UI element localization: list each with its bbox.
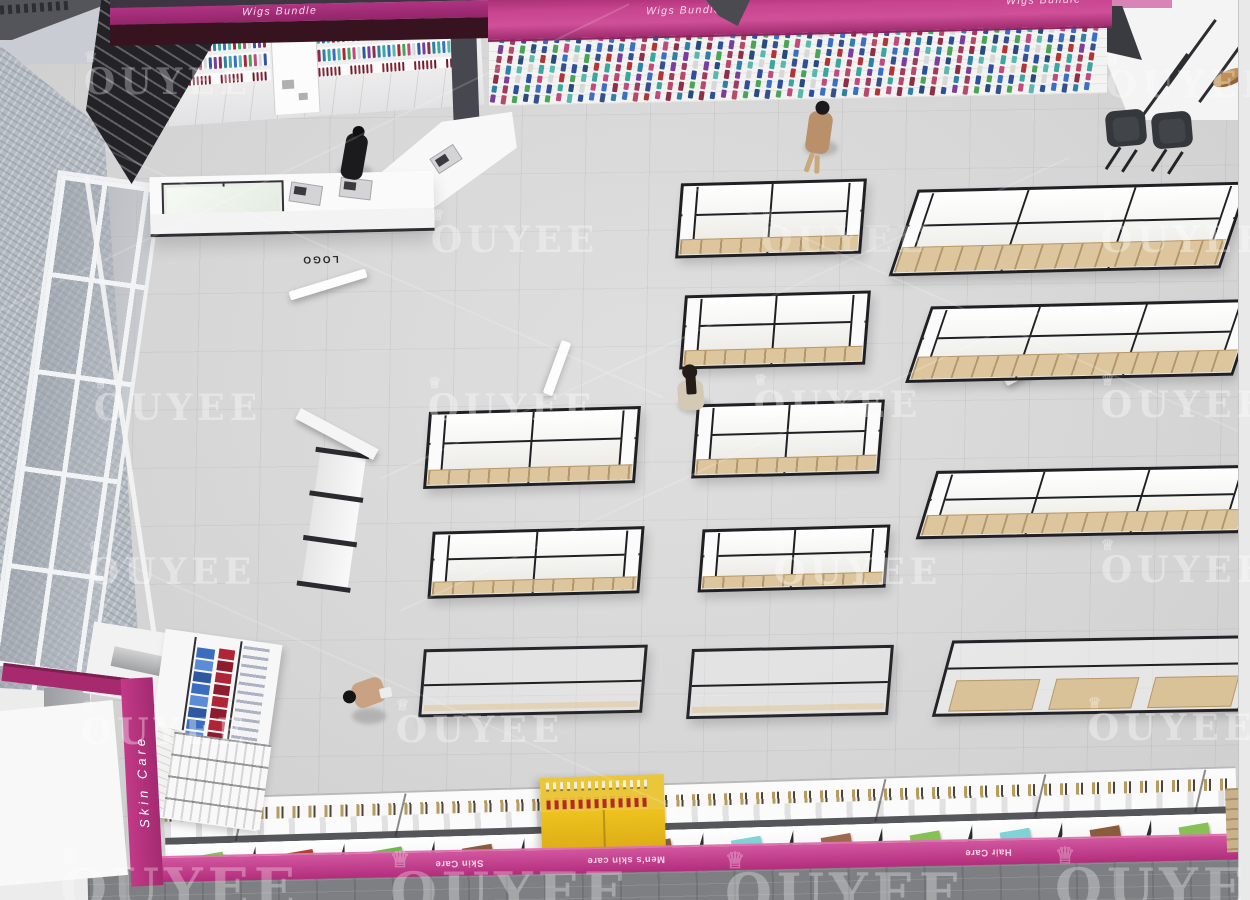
chair-leg <box>1121 149 1138 172</box>
display-table-std <box>427 526 644 599</box>
person-body <box>339 132 369 181</box>
crown-icon: ♕ <box>396 696 410 714</box>
mens-skin-care-label: Men's skin care <box>587 853 665 866</box>
red-item <box>546 799 550 810</box>
display-table-std <box>423 406 641 489</box>
poster-thumbnail <box>282 80 294 90</box>
salon-shelf-items <box>0 0 74 19</box>
gold-item <box>581 782 584 791</box>
display-table-std <box>691 399 885 478</box>
wigs-bundle-sign-left: Wigs Bundle <box>242 5 317 19</box>
table-shelf-divider <box>930 493 1249 501</box>
small-dark-item <box>40 3 45 12</box>
red-product <box>213 684 230 696</box>
skin-care-label: Skin Care <box>435 857 484 869</box>
wigs-banner-left: Wigs Bundle <box>110 0 492 46</box>
display-table-right <box>905 299 1250 383</box>
red-item <box>554 798 558 809</box>
gold-item <box>567 782 570 791</box>
red-item <box>626 796 630 807</box>
table-wood-base <box>894 239 1226 272</box>
small-dark-item <box>24 4 29 13</box>
red-product <box>216 660 233 672</box>
display-table-right <box>916 465 1250 540</box>
wood-bin <box>948 679 1040 712</box>
table-wood-base <box>695 455 876 474</box>
person-customer-crouching <box>336 663 405 753</box>
ceiling-light-bar <box>543 340 572 396</box>
red-product <box>215 672 232 684</box>
table-shelf-divider <box>923 330 1246 339</box>
reception-counter: LOGO <box>149 171 434 237</box>
watermark-text: OUYEE <box>1101 384 1250 426</box>
small-dark-item <box>56 1 61 10</box>
small-dark-item <box>32 3 37 12</box>
wigs-bundle-sign-right: Wigs Bundle <box>1006 0 1081 7</box>
display-table-std <box>675 178 867 258</box>
person-limb <box>803 152 815 173</box>
red-product <box>210 708 227 720</box>
person-limb <box>379 687 393 699</box>
cash-register <box>288 181 323 206</box>
chair-leg <box>1105 147 1122 170</box>
red-item <box>578 798 582 809</box>
table-wood-base <box>432 576 637 595</box>
right-wall-edge <box>1238 0 1250 900</box>
gold-item <box>602 781 605 790</box>
table-wood-base <box>702 571 883 588</box>
entrance-white-wall <box>0 700 128 886</box>
small-dark-item <box>48 2 53 11</box>
chair-leg <box>1167 151 1184 174</box>
gold-item <box>630 780 633 789</box>
logo-sign: LOGO <box>301 253 339 265</box>
display-table-rightlow <box>932 635 1250 717</box>
gold-item <box>588 781 591 790</box>
table-wood-base <box>910 349 1237 378</box>
person-limb <box>685 374 696 395</box>
person-customer-walking <box>795 97 850 182</box>
crown-icon: ♕ <box>754 371 768 389</box>
table-wood-line <box>692 703 884 713</box>
table-wood-base <box>679 235 858 254</box>
display-table-std <box>698 524 891 592</box>
gold-item <box>616 781 619 790</box>
gold-item <box>553 782 556 791</box>
table-shelf-divider <box>692 681 888 687</box>
table-wood-line <box>424 701 638 711</box>
gold-item <box>609 781 612 790</box>
salon-chair <box>1102 108 1153 170</box>
person-customer-standing <box>671 357 720 440</box>
blue-product <box>193 671 212 683</box>
blue-product <box>194 659 213 671</box>
gold-item <box>637 780 640 789</box>
blue-product <box>191 683 210 695</box>
gold-item <box>623 780 626 789</box>
gold-item <box>595 781 598 790</box>
red-product <box>208 720 225 732</box>
blue-product <box>188 707 207 719</box>
blue-product <box>189 695 208 707</box>
blue-product <box>196 647 215 659</box>
blue-product <box>186 719 205 731</box>
crown-icon: ♕ <box>1101 536 1115 554</box>
display-table-low <box>686 645 894 719</box>
ouyee-watermark: ♕OUYEE <box>1101 384 1250 426</box>
gold-item <box>560 782 563 791</box>
chair-leg <box>1151 149 1168 172</box>
red-item <box>610 797 614 808</box>
gold-item <box>546 783 549 792</box>
hair-care-label: Hair Care <box>965 846 1012 858</box>
chair-seat <box>1151 110 1194 149</box>
crown-icon: ♕ <box>428 374 442 392</box>
red-item <box>586 797 590 808</box>
display-table-right <box>888 182 1249 277</box>
wood-bin <box>1147 675 1239 708</box>
red-item <box>634 796 638 807</box>
wood-bin <box>1048 677 1140 710</box>
small-dark-item <box>64 1 69 10</box>
red-item <box>642 796 646 807</box>
table-wood-base <box>427 464 632 485</box>
display-table-low <box>418 645 648 718</box>
red-product <box>211 696 228 708</box>
gold-item <box>644 780 647 789</box>
ceiling-light-bar <box>288 269 367 301</box>
ouyee-watermark: ♕OUYEE <box>431 219 599 261</box>
skin-care-lower-cabinet <box>162 732 271 831</box>
table-shelf-divider <box>424 680 642 687</box>
small-dark-item <box>16 4 21 13</box>
gold-item <box>574 782 577 791</box>
person-body <box>804 110 834 155</box>
small-dark-item <box>0 5 4 14</box>
poster-thumbnail <box>299 93 308 101</box>
red-item <box>594 797 598 808</box>
store-render: Wigs Bundle Wigs Bundle Wigs Bundle LOGO… <box>0 0 1250 900</box>
watermark-text: OUYEE <box>1101 549 1250 591</box>
wigs-bundle-sign-center: Wigs Bundle <box>646 4 721 18</box>
red-item <box>602 797 606 808</box>
table-shelf-divider <box>948 662 1250 669</box>
ouyee-watermark: ♕OUYEE <box>1101 549 1250 591</box>
table-wood-base <box>921 509 1243 535</box>
chair-seat <box>1105 108 1148 147</box>
table-shelf-divider <box>908 217 1235 227</box>
red-item <box>618 796 622 807</box>
watermark-text: OUYEE <box>431 219 599 261</box>
red-item <box>570 798 574 809</box>
person-limb <box>814 155 820 173</box>
skin-care-sign: Skin Care <box>132 735 152 829</box>
red-product <box>218 648 235 660</box>
red-item <box>562 798 566 809</box>
salon-chair <box>1148 110 1199 172</box>
small-dark-item <box>8 5 13 14</box>
